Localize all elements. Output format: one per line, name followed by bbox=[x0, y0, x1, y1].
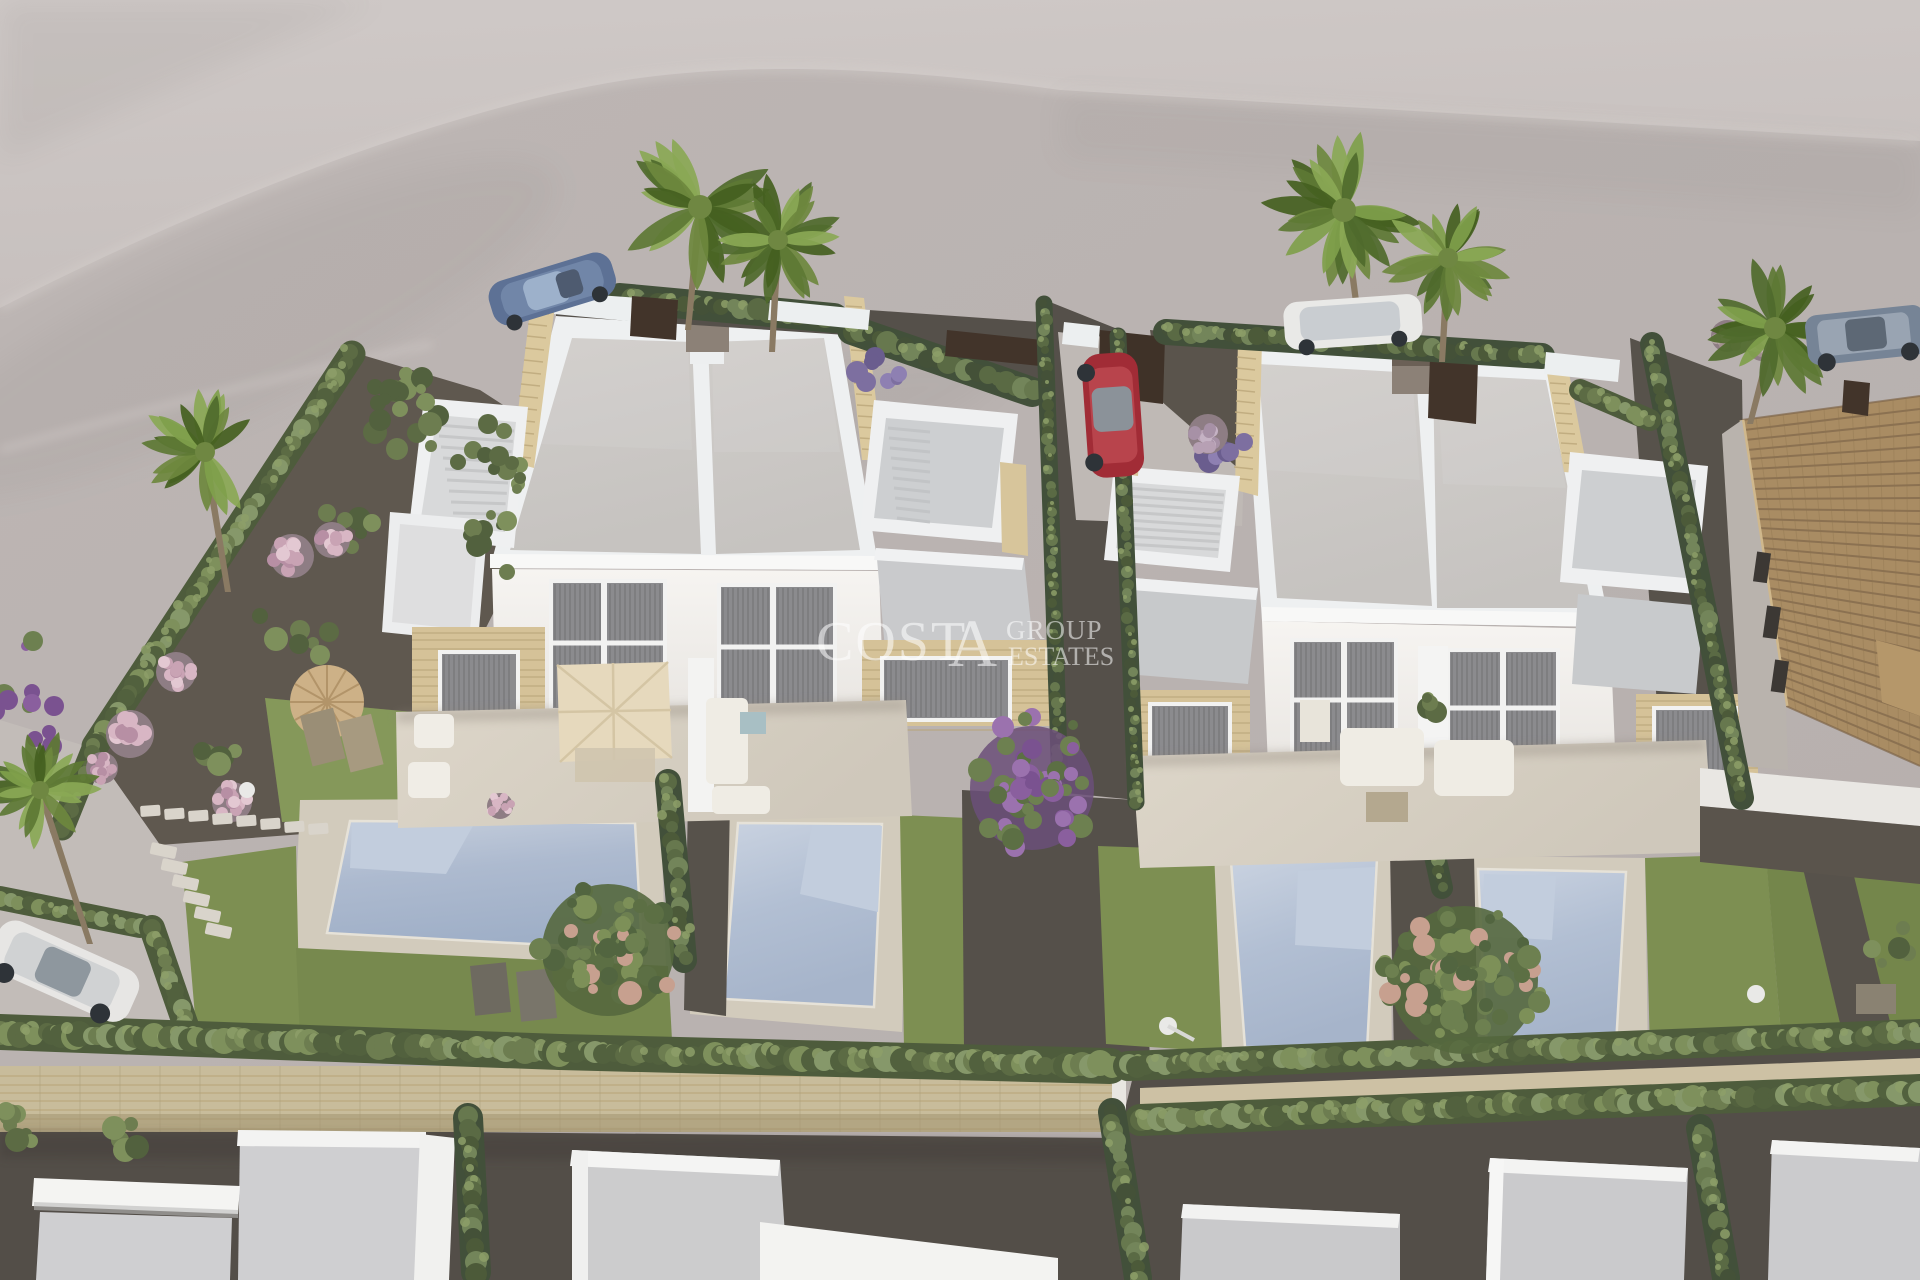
svg-text:A: A bbox=[948, 605, 997, 681]
svg-text:COST: COST bbox=[816, 611, 967, 673]
svg-text:ESTATES: ESTATES bbox=[1008, 642, 1114, 671]
svg-text:GROUP: GROUP bbox=[1006, 615, 1103, 645]
